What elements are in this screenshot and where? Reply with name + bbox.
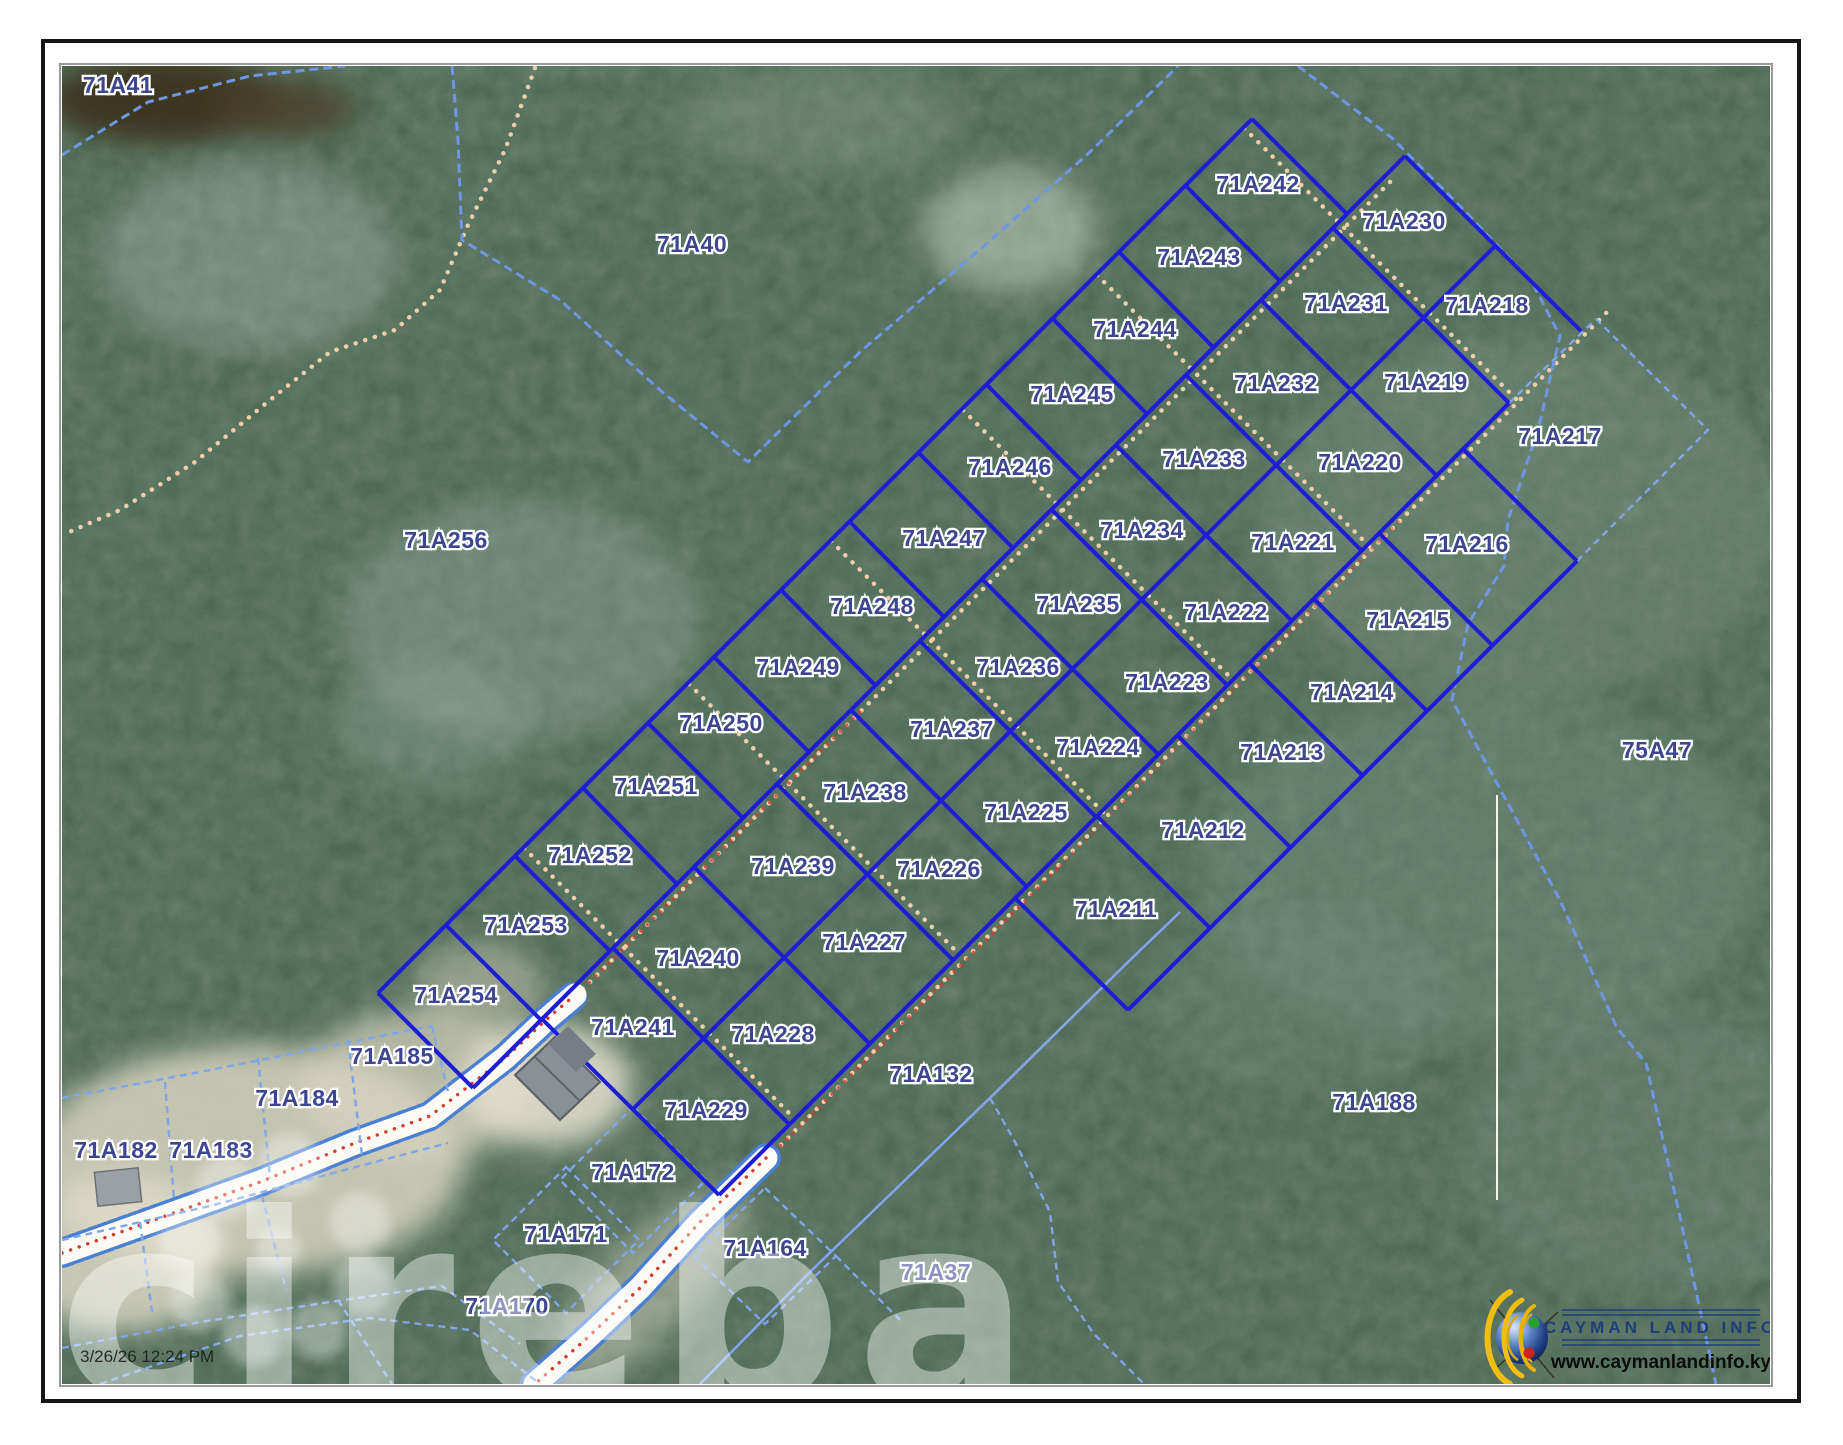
cadastral-map: 71A4171A4071A25675A4771A18871A13271A3771… bbox=[0, 0, 1843, 1445]
parcel-label-71A220: 71A220 bbox=[1318, 449, 1402, 475]
parcel-label-71A226: 71A226 bbox=[897, 856, 981, 882]
parcel-label-75A47: 75A47 bbox=[1622, 737, 1692, 763]
parcel-label-71A218: 71A218 bbox=[1445, 292, 1529, 318]
parcel-label-71A235: 71A235 bbox=[1036, 591, 1120, 617]
parcel-label-71A233: 71A233 bbox=[1162, 446, 1246, 472]
parcel-label-71A243: 71A243 bbox=[1157, 244, 1241, 270]
parcel-label-71A212: 71A212 bbox=[1161, 817, 1245, 843]
logo-title: CAYMAN LAND INFO bbox=[1544, 1318, 1778, 1337]
parcel-label-71A217: 71A217 bbox=[1518, 423, 1602, 449]
timestamp: 3/26/26 12:24 PM bbox=[80, 1347, 214, 1366]
parcel-label-71A223: 71A223 bbox=[1125, 669, 1209, 695]
map-canvas: 71A4171A4071A25675A4771A18871A13271A3771… bbox=[15, 56, 1843, 1445]
map-document-page: 71A4171A4071A25675A4771A18871A13271A3771… bbox=[0, 0, 1843, 1445]
parcel-label-71A232: 71A232 bbox=[1234, 370, 1318, 396]
parcel-label-71A40: 71A40 bbox=[657, 231, 727, 257]
parcel-label-71A234: 71A234 bbox=[1100, 517, 1184, 543]
aerial-imagery: 71A4171A4071A25675A4771A18871A13271A3771… bbox=[15, 56, 1843, 1445]
logo-website: www.caymanlandinfo.ky bbox=[1550, 1352, 1771, 1373]
parcel-label-71A219: 71A219 bbox=[1384, 369, 1468, 395]
parcel-label-71A216: 71A216 bbox=[1425, 531, 1509, 557]
parcel-label-71A228: 71A228 bbox=[731, 1021, 815, 1047]
parcel-label-71A250: 71A250 bbox=[679, 710, 763, 736]
parcel-label-71A215: 71A215 bbox=[1366, 607, 1450, 633]
red-node-dot bbox=[1524, 1348, 1535, 1359]
parcel-label-71A254: 71A254 bbox=[414, 982, 498, 1008]
parcel-label-71A240: 71A240 bbox=[656, 945, 740, 971]
parcel-label-71A246: 71A246 bbox=[968, 454, 1052, 480]
parcel-label-71A247: 71A247 bbox=[902, 525, 986, 551]
parcel-label-71A184: 71A184 bbox=[255, 1085, 339, 1111]
parcel-label-71A253: 71A253 bbox=[484, 912, 568, 938]
parcel-label-71A41: 71A41 bbox=[83, 72, 153, 98]
parcel-label-71A252: 71A252 bbox=[548, 842, 632, 868]
green-node-dot bbox=[1529, 1318, 1540, 1329]
parcel-label-71A229: 71A229 bbox=[664, 1097, 748, 1123]
parcel-label-71A248: 71A248 bbox=[830, 593, 914, 619]
parcel-label-71A211: 71A211 bbox=[1075, 896, 1157, 922]
parcel-label-71A213: 71A213 bbox=[1240, 739, 1324, 765]
parcel-label-71A239: 71A239 bbox=[751, 853, 835, 879]
parcel-label-71A237: 71A237 bbox=[910, 716, 994, 742]
parcel-label-71A231: 71A231 bbox=[1304, 290, 1388, 316]
parcel-label-71A222: 71A222 bbox=[1184, 599, 1268, 625]
parcel-label-71A230: 71A230 bbox=[1362, 208, 1446, 234]
parcel-label-71A244: 71A244 bbox=[1093, 316, 1177, 342]
parcel-label-71A227: 71A227 bbox=[822, 929, 906, 955]
parcel-label-71A188: 71A188 bbox=[1332, 1089, 1416, 1115]
parcel-label-71A224: 71A224 bbox=[1056, 734, 1140, 760]
parcel-label-71A249: 71A249 bbox=[756, 654, 840, 680]
parcel-label-71A214: 71A214 bbox=[1310, 679, 1394, 705]
parcel-label-71A132: 71A132 bbox=[889, 1061, 973, 1087]
parcel-label-71A241: 71A241 bbox=[591, 1014, 675, 1040]
parcel-label-71A251: 71A251 bbox=[614, 773, 698, 799]
parcel-label-71A185: 71A185 bbox=[350, 1043, 434, 1069]
parcel-label-71A256: 71A256 bbox=[404, 527, 488, 553]
parcel-label-71A225: 71A225 bbox=[984, 799, 1068, 825]
parcel-label-71A242: 71A242 bbox=[1216, 171, 1300, 197]
parcel-label-71A238: 71A238 bbox=[823, 779, 907, 805]
parcel-label-71A221: 71A221 bbox=[1251, 529, 1335, 555]
parcel-label-71A236: 71A236 bbox=[976, 654, 1060, 680]
parcel-label-71A245: 71A245 bbox=[1030, 381, 1114, 407]
